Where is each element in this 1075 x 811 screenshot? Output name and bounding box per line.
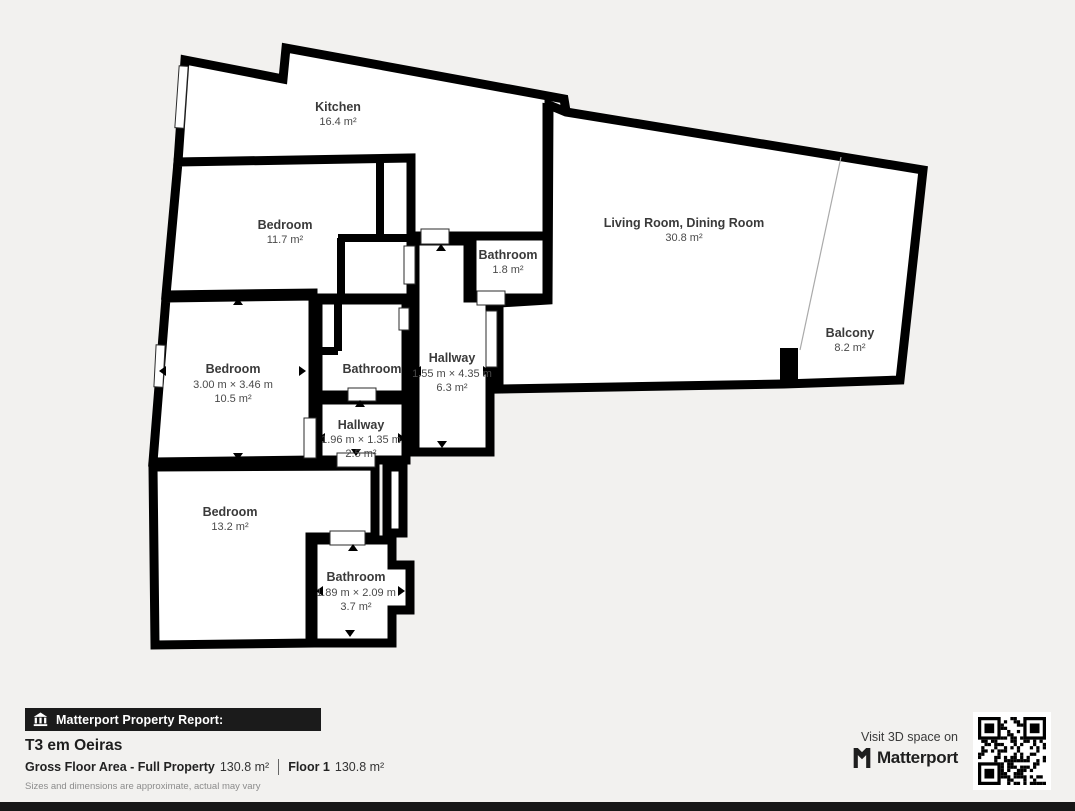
floor-label: Floor 1	[288, 760, 330, 774]
room-area: 10.5 m²	[214, 393, 252, 405]
room-label: Bedroom	[206, 362, 261, 376]
bedroom-2-window	[154, 345, 165, 387]
room-label: Living Room, Dining Room	[604, 216, 764, 230]
room-closet	[387, 467, 403, 533]
room-label: Balcony	[826, 326, 875, 340]
property-report-page: Kitchen 16.4 m² Bedroom 11.7 m² Living R…	[0, 0, 1075, 811]
room-area: 3.7 m²	[340, 601, 372, 613]
floor-value: 130.8 m²	[335, 760, 384, 774]
report-badge-label: Matterport Property Report:	[56, 713, 223, 727]
bottom-bar	[0, 802, 1075, 811]
bathroom-2-door-opening	[348, 388, 376, 401]
room-label: Bedroom	[203, 505, 258, 519]
room-dims: 1.89 m × 2.09 m	[316, 587, 396, 599]
room-area: 13.2 m²	[211, 521, 249, 533]
bathroom-1-door-opening	[477, 291, 505, 305]
floor-plan: Kitchen 16.4 m² Bedroom 11.7 m² Living R…	[0, 0, 1075, 705]
room-label: Hallway	[429, 351, 476, 365]
matterport-brand-name: Matterport	[877, 748, 958, 768]
gfa-label: Gross Floor Area - Full Property	[25, 760, 215, 774]
room-label: Bathroom	[478, 248, 537, 262]
property-title: T3 em Oeiras	[25, 737, 122, 755]
gfa-value: 130.8 m²	[220, 760, 269, 774]
bedroom-2-door-opening	[304, 418, 316, 458]
room-label: Bathroom	[326, 570, 385, 584]
room-label: Bedroom	[258, 218, 313, 232]
room-area: 6.3 m²	[436, 382, 468, 394]
room-area: 1.8 m²	[492, 264, 524, 276]
floor-area-stats: Gross Floor Area - Full Property 130.8 m…	[25, 759, 384, 775]
closet-door-opening	[404, 246, 415, 284]
matterport-logo-icon	[852, 747, 872, 769]
visit-3d-text: Visit 3D space on	[830, 730, 958, 744]
room-dims: 1.55 m × 4.35 m	[412, 368, 492, 380]
floor-plan-walls	[153, 48, 923, 645]
entry-door-opening	[421, 229, 449, 244]
room-label: Kitchen	[315, 100, 361, 114]
matterport-link[interactable]: Matterport	[830, 747, 958, 769]
room-label: Hallway	[338, 418, 385, 432]
room-label: Bathroom	[342, 362, 401, 376]
qr-code	[973, 712, 1051, 790]
room-dims: 3.00 m × 3.46 m	[193, 379, 273, 391]
room-area: 11.7 m²	[267, 234, 304, 246]
building-icon	[33, 712, 48, 727]
room-dims: 1.96 m × 1.35 m	[321, 434, 401, 446]
hallway-1-living-opening	[486, 311, 497, 367]
room-area: 30.8 m²	[665, 232, 703, 244]
bathroom-3-door-opening	[330, 531, 365, 545]
bathroom-2-window	[399, 308, 409, 330]
room-area: 16.4 m²	[319, 116, 357, 128]
wall-pillar	[780, 348, 798, 386]
room-area: 8.2 m²	[834, 342, 866, 354]
stats-separator	[278, 759, 279, 775]
report-badge: Matterport Property Report:	[25, 708, 321, 731]
room-area: 2.5 m²	[345, 448, 377, 460]
disclaimer-text: Sizes and dimensions are approximate, ac…	[25, 781, 261, 792]
